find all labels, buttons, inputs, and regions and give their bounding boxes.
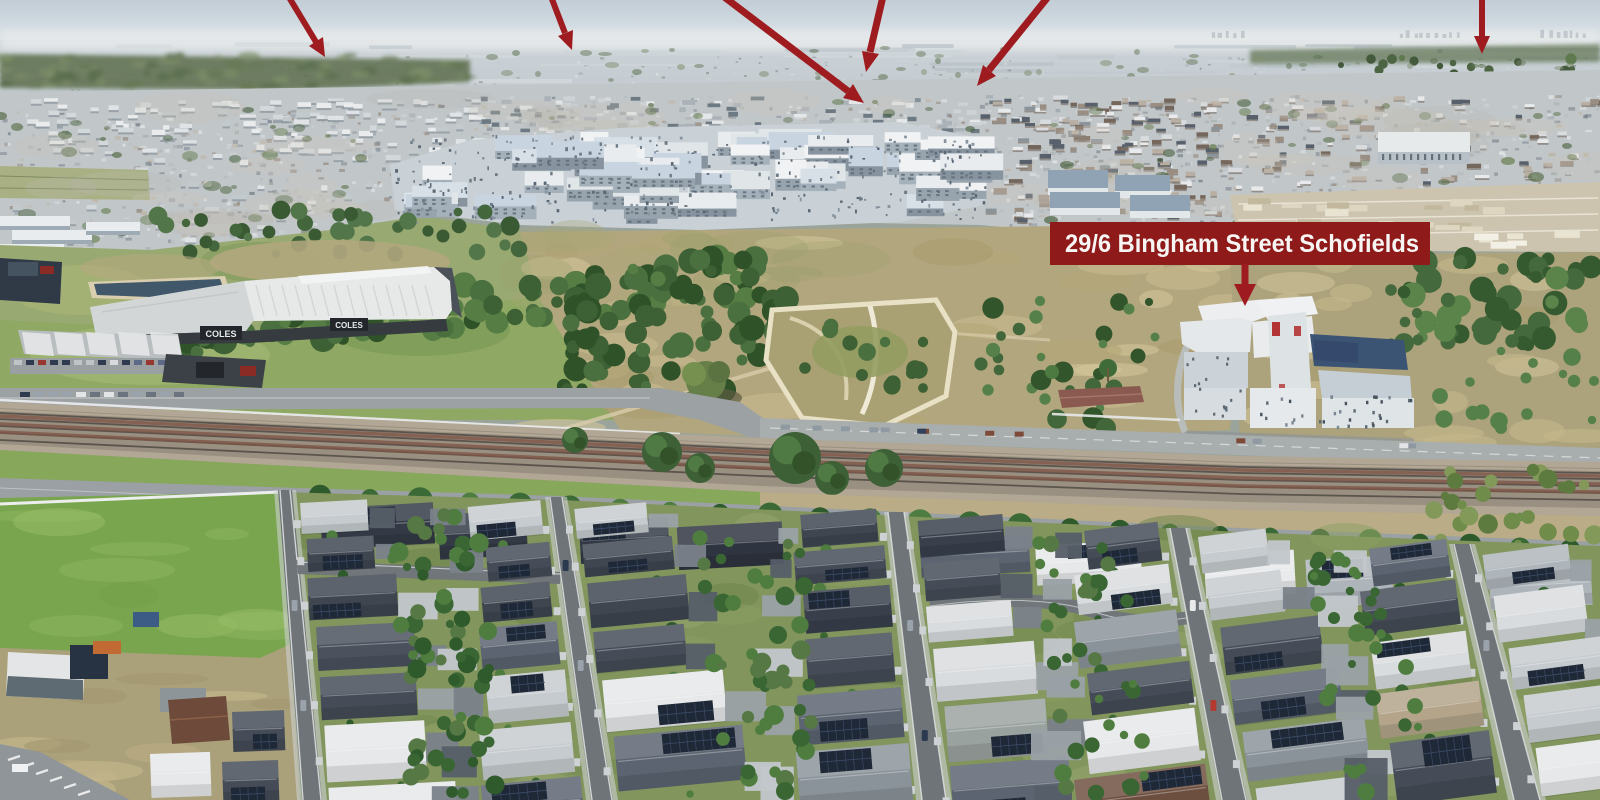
svg-text:COLES: COLES xyxy=(335,321,363,330)
svg-text:COLES: COLES xyxy=(205,329,236,339)
